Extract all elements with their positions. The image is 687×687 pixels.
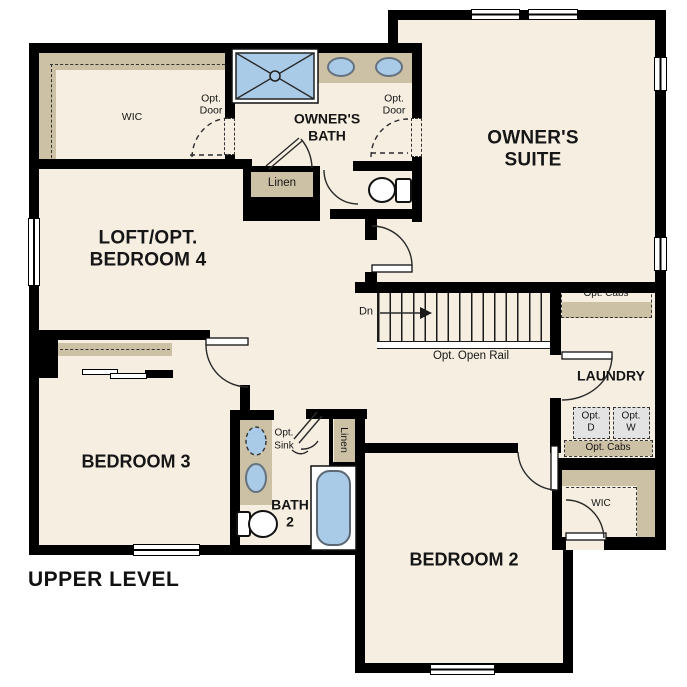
label-line: BATH (294, 127, 360, 144)
label-linen-bath: Linen (268, 177, 296, 191)
label-line: Opt. (622, 411, 641, 423)
bedroom3-door-arc (206, 345, 248, 387)
floor-plan: WIC Opt. Door OWNER'S BATH Opt. Door OWN… (0, 0, 687, 687)
label-line: OWNER'S (294, 110, 360, 127)
bedroom3-door-leaf (206, 338, 248, 345)
label-line: BATH (271, 496, 309, 513)
label-opt-washer: Opt. W (622, 411, 641, 434)
label-opt-cabs-upper: Opt. Cabs (583, 288, 628, 300)
bathtub (317, 471, 350, 545)
label-line: BEDROOM 4 (90, 250, 207, 272)
shower-drain (270, 71, 280, 81)
label-opt-door-right: Opt. Door (383, 93, 406, 118)
optional-sink (246, 427, 266, 455)
toilet (369, 178, 395, 202)
room-label-owners-suite: OWNER'S SUITE (487, 128, 578, 173)
label-line: SUITE (487, 150, 578, 172)
bedroom2-door-leaf (551, 446, 558, 490)
toilet-tank (396, 179, 411, 202)
opt-sink-leader (292, 450, 308, 454)
label-line: Sink (274, 440, 293, 453)
label-line: W (622, 422, 641, 434)
bedroom2-door-arc (518, 452, 556, 490)
plan-title: UPPER LEVEL (28, 568, 179, 592)
label-linen-hall: Linen (338, 427, 350, 453)
bath2-door-arc (301, 441, 318, 449)
room-label-loft: LOFT/OPT. BEDROOM 4 (90, 228, 207, 273)
label-opt-door-left: Opt. Door (200, 93, 223, 118)
label-line: Opt. (582, 411, 601, 423)
toilet-room-door-arc (324, 170, 358, 204)
label-line: OWNER'S (487, 128, 578, 150)
label-opt-sink: Opt. Sink (274, 428, 293, 453)
sink (328, 58, 354, 76)
label-line: Door (383, 105, 406, 117)
label-line: 2 (271, 513, 309, 530)
label-line: Opt. (383, 93, 406, 105)
suite-door-arc (372, 226, 412, 266)
sink (246, 464, 266, 492)
label-opt-cabs-lower: Opt. Cabs (585, 442, 630, 454)
stairs-arrow-head (420, 307, 432, 319)
bath2-door-leaf (294, 412, 322, 443)
room-label-bedroom3: BEDROOM 3 (81, 451, 190, 472)
label-line: Opt. (200, 93, 223, 105)
label-line: Opt. (274, 428, 293, 441)
label-line: Door (200, 105, 223, 117)
label-stairs-down: Dn (359, 306, 373, 319)
room-label-owners-bath: OWNER'S BATH (294, 110, 360, 143)
room-label-bath2: BATH 2 (271, 496, 309, 529)
label-opt-open-rail: Opt. Open Rail (433, 350, 509, 364)
suite-opt-door-arc (371, 119, 408, 157)
room-label-wic-upper: WIC (122, 111, 142, 123)
label-opt-dryer: Opt. D (582, 411, 601, 434)
laundry-door-leaf (562, 352, 612, 359)
sink (376, 58, 402, 76)
suite-door-leaf (372, 265, 412, 272)
label-line: LOFT/OPT. (90, 228, 207, 250)
room-label-laundry: LAUNDRY (577, 368, 645, 385)
wic-opt-door-arc (192, 118, 230, 157)
room-label-wic-lower: WIC (591, 498, 610, 510)
wic-lower-door-leaf (566, 533, 606, 540)
label-line: D (582, 422, 601, 434)
room-label-bedroom2: BEDROOM 2 (409, 549, 518, 570)
